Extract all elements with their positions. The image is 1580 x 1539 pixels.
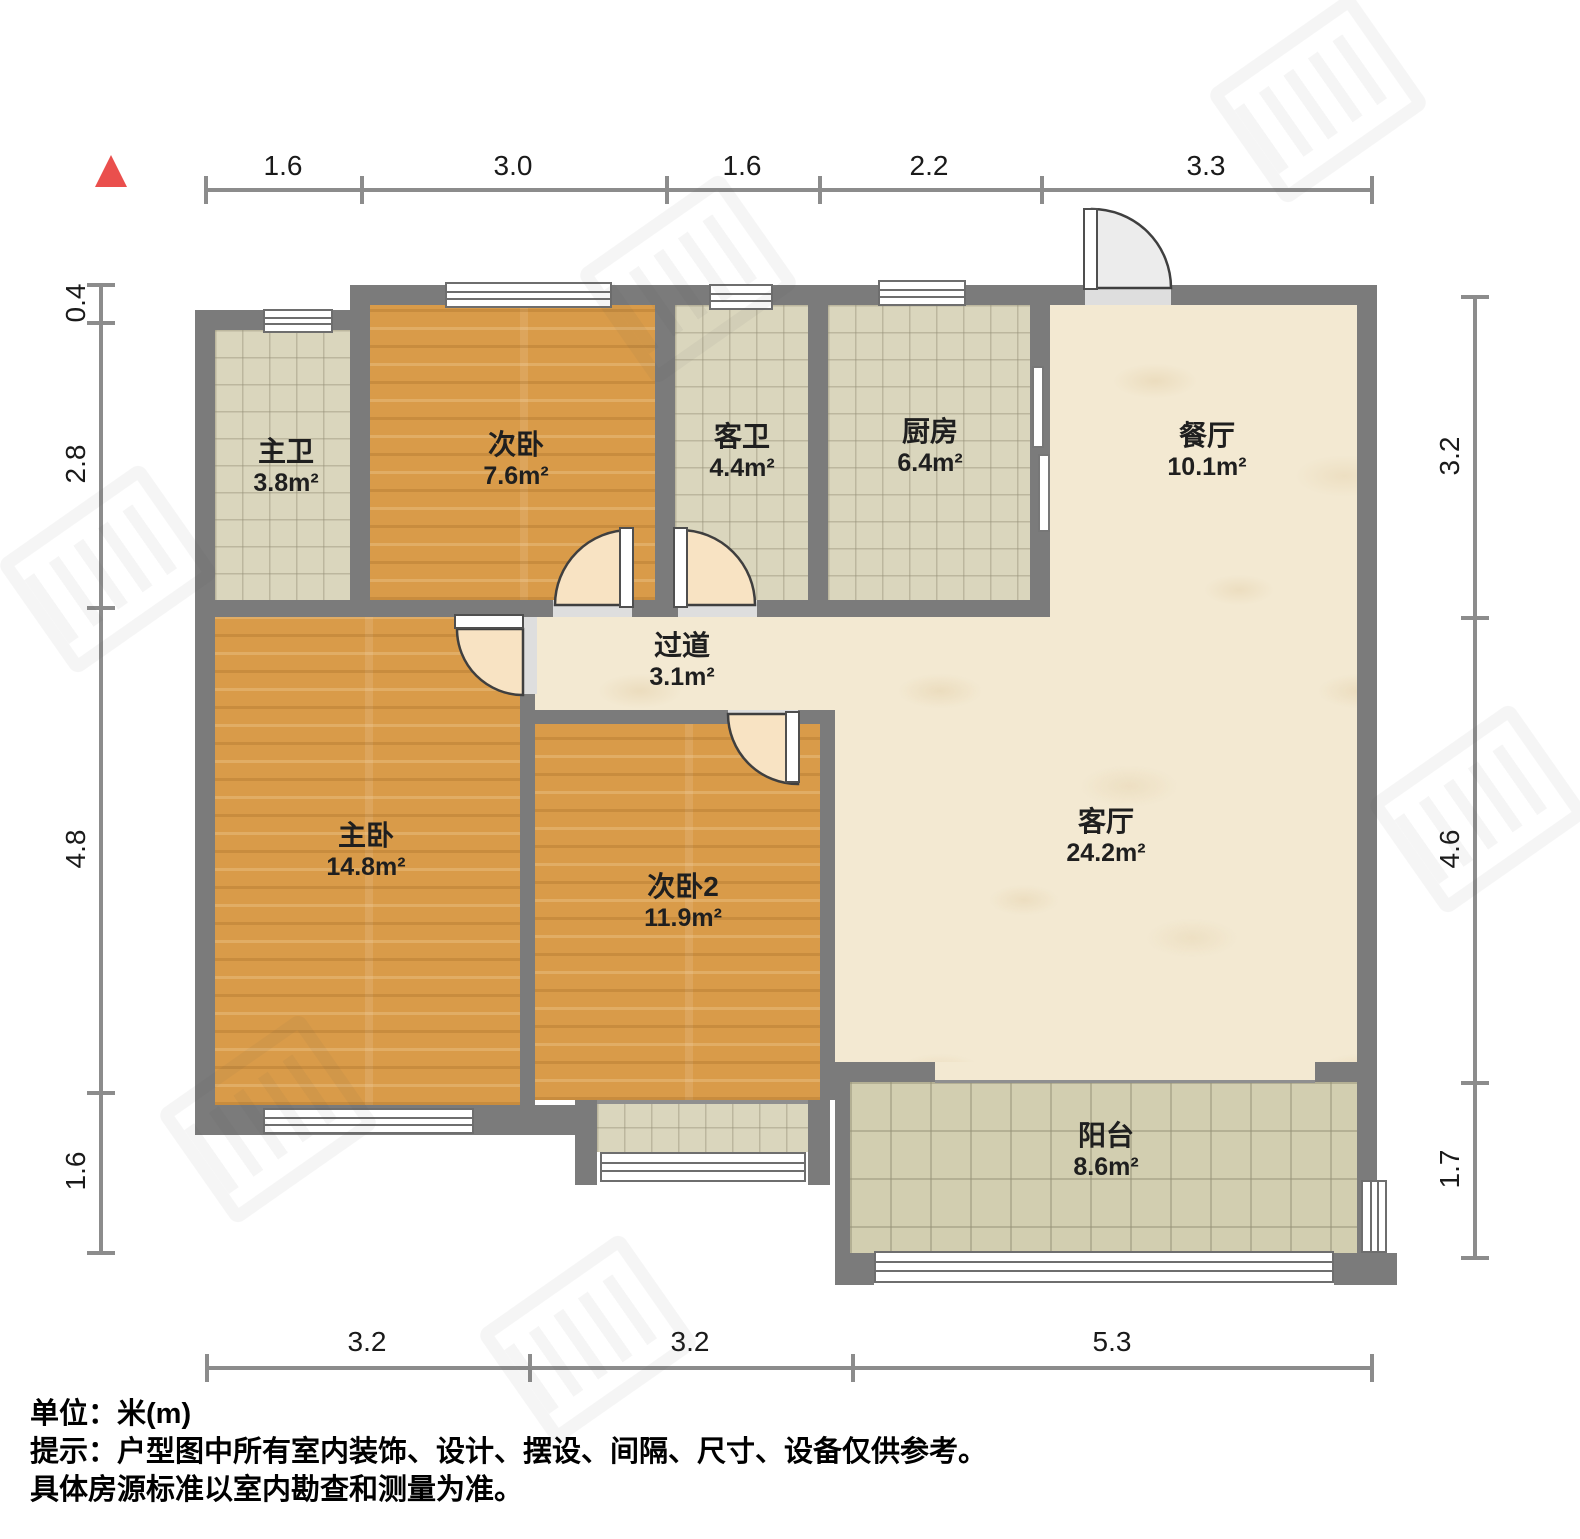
dim-label-right-1: 4.6: [1434, 830, 1466, 869]
room-name: 次卧2: [644, 871, 722, 903]
room-area: 3.8m²: [253, 468, 318, 499]
dim-tick: [1461, 1256, 1489, 1260]
dim-label-right-0: 3.2: [1434, 437, 1466, 476]
door-swing-bedroom-2: [555, 530, 630, 605]
dim-label-top-3: 2.2: [910, 150, 949, 182]
room-label-bedroom-2: 次卧 7.6m²: [483, 429, 548, 492]
dim-line-bottom: [205, 1366, 1374, 1370]
door-leaf-entry: [1084, 209, 1097, 289]
room-name: 主卫: [253, 436, 318, 468]
dim-label-left-1: 2.8: [60, 445, 92, 484]
dim-label-top-4: 3.3: [1187, 150, 1226, 182]
room-area: 11.9m²: [644, 903, 722, 934]
dim-line-left: [99, 283, 103, 1255]
door-swing-entry: [1092, 209, 1171, 288]
footer-unit-label: 单位：米(m): [30, 1390, 191, 1432]
room-area: 7.6m²: [483, 461, 548, 492]
dim-tick: [87, 606, 115, 610]
room-label-master-bedroom: 主卧 14.8m²: [326, 820, 405, 883]
door-leaf-bedroom-2b: [786, 712, 799, 782]
north-arrow-icon: [95, 155, 127, 187]
dim-label-top-1: 3.0: [494, 150, 533, 182]
room-name: 餐厅: [1167, 420, 1246, 452]
dim-tick: [1461, 1081, 1489, 1085]
room-label-dining-room: 餐厅 10.1m²: [1167, 420, 1246, 483]
dim-tick: [204, 176, 208, 204]
room-area: 3.1m²: [649, 662, 714, 693]
dim-tick: [665, 176, 669, 204]
dim-label-left-0: 0.4: [60, 284, 92, 323]
room-name: 次卧: [483, 429, 548, 461]
dim-line-right: [1473, 295, 1477, 1260]
door-swing-master-bedroom: [457, 629, 523, 695]
dim-tick: [360, 176, 364, 204]
dim-label-top-0: 1.6: [264, 150, 303, 182]
floor-plan-canvas: 主卫 3.8m² 次卧 7.6m² 客卫 4.4m² 厨房 6.4m² 餐厅 1…: [0, 0, 1580, 1539]
dim-label-bottom-1: 3.2: [671, 1326, 710, 1358]
doors-layer: [0, 0, 1580, 1539]
dim-tick: [1370, 176, 1374, 204]
room-label-bedroom-2b: 次卧2 11.9m²: [644, 871, 722, 934]
room-name: 主卧: [326, 820, 405, 852]
dim-tick: [1370, 1354, 1374, 1382]
room-label-kitchen: 厨房 6.4m²: [897, 416, 962, 479]
room-name: 客卫: [709, 421, 774, 453]
dim-tick: [851, 1354, 855, 1382]
room-area: 24.2m²: [1066, 838, 1145, 869]
dim-label-top-2: 1.6: [723, 150, 762, 182]
room-label-guest-bath: 客卫 4.4m²: [709, 421, 774, 484]
room-area: 4.4m²: [709, 453, 774, 484]
room-name: 客厅: [1066, 806, 1145, 838]
room-label-hallway: 过道 3.1m²: [649, 630, 714, 693]
door-swing-guest-bath: [680, 530, 755, 605]
room-area: 6.4m²: [897, 448, 962, 479]
room-label-balcony: 阳台 8.6m²: [1073, 1120, 1138, 1183]
dim-tick: [87, 1091, 115, 1095]
dim-tick: [1040, 176, 1044, 204]
dim-tick: [1461, 616, 1489, 620]
footer-note-2: 具体房源标准以室内勘查和测量为准。: [30, 1466, 523, 1508]
dim-label-left-2: 4.8: [60, 830, 92, 869]
door-leaf-guest-bath: [674, 528, 687, 607]
dim-tick: [87, 1251, 115, 1255]
dim-tick: [205, 1354, 209, 1382]
dim-label-bottom-0: 3.2: [348, 1326, 387, 1358]
room-label-living-room: 客厅 24.2m²: [1066, 806, 1145, 869]
room-area: 8.6m²: [1073, 1152, 1138, 1183]
dim-label-bottom-2: 5.3: [1093, 1326, 1132, 1358]
footer-note-1: 提示：户型图中所有室内装饰、设计、摆设、间隔、尺寸、设备仅供参考。: [30, 1428, 987, 1470]
room-area: 14.8m²: [326, 852, 405, 883]
dim-tick: [528, 1354, 532, 1382]
room-name: 过道: [649, 630, 714, 662]
dim-tick: [1461, 295, 1489, 299]
door-leaf-bedroom-2: [620, 528, 633, 607]
room-name: 厨房: [897, 416, 962, 448]
room-label-master-bath: 主卫 3.8m²: [253, 436, 318, 499]
dim-label-left-3: 1.6: [60, 1152, 92, 1191]
dim-line-top: [204, 188, 1374, 192]
dim-label-right-2: 1.7: [1434, 1150, 1466, 1189]
room-area: 10.1m²: [1167, 452, 1246, 483]
door-leaf-master-bedroom: [455, 615, 523, 628]
room-name: 阳台: [1073, 1120, 1138, 1152]
dim-tick: [818, 176, 822, 204]
